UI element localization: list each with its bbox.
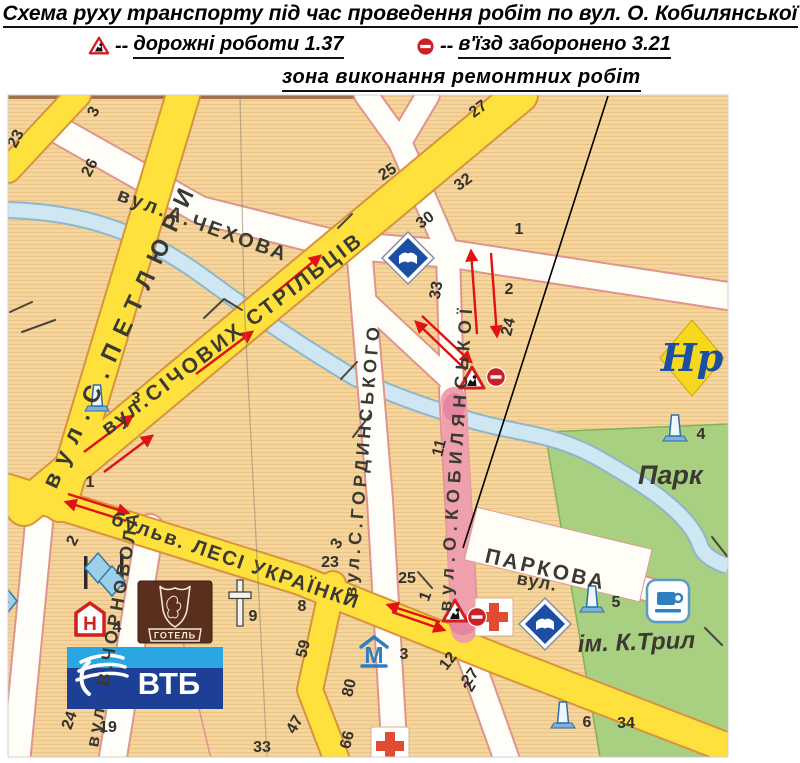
- cafe-icon: [647, 580, 689, 622]
- svg-text:ГОТЕЛЬ: ГОТЕЛЬ: [154, 631, 196, 641]
- legend-dashes: --: [115, 35, 128, 58]
- house-number: 19: [99, 719, 117, 736]
- house-number: 2: [505, 281, 514, 298]
- legend-item-no-entry: -- в'їзд заборонено 3.21: [416, 33, 671, 59]
- house-number: 4: [113, 619, 122, 636]
- house-number: 34: [617, 715, 635, 732]
- house-number: 23: [321, 554, 339, 571]
- legend-dashes: --: [440, 35, 453, 58]
- roadworks-icon: [88, 36, 110, 56]
- legend-item-roadworks: -- дорожні роботи 1.37: [88, 33, 344, 59]
- house-number: 4: [697, 426, 706, 443]
- legend-label-roadworks: дорожні роботи 1.37: [133, 33, 343, 59]
- house-number: 1: [86, 474, 95, 491]
- house-number: 1: [515, 221, 524, 238]
- house-number: 33: [427, 280, 447, 301]
- street-label: Парк: [638, 460, 704, 490]
- house-number: 33: [253, 739, 271, 756]
- no-entry-sign-icon: [486, 367, 506, 387]
- svg-text:Нр: Нр: [660, 335, 724, 380]
- house-number: 9: [249, 608, 258, 625]
- house-number: 3: [132, 390, 141, 407]
- street-label: ім. К.Трил: [577, 627, 695, 658]
- legend-label-no-entry: в'їзд заборонено 3.21: [458, 33, 671, 59]
- no-entry-icon: [416, 37, 435, 56]
- map-title: Схема руху транспорту під час проведення…: [0, 2, 800, 26]
- hotel-logo-icon: ГОТЕЛЬ: [138, 581, 212, 643]
- house-number: 25: [398, 570, 416, 587]
- house-number: 8: [298, 598, 307, 615]
- house-number: 6: [583, 714, 592, 731]
- house-number: 5: [612, 594, 621, 611]
- zone-label: зона виконання ремонтних робіт: [282, 66, 641, 89]
- no-entry-sign-icon: [467, 607, 487, 627]
- red-cross-icon: [371, 727, 409, 763]
- map-canvas: МНГОТЕЛЬВТБНр вул.А.ЧЕХОВАвул.С.ПЕТЛЮРИв…: [0, 0, 800, 763]
- svg-text:М: М: [364, 642, 383, 668]
- house-number: 3: [400, 646, 409, 663]
- svg-text:ВТБ: ВТБ: [138, 666, 200, 701]
- museum-m-icon: М: [361, 637, 387, 668]
- svg-text:Н: Н: [83, 614, 97, 635]
